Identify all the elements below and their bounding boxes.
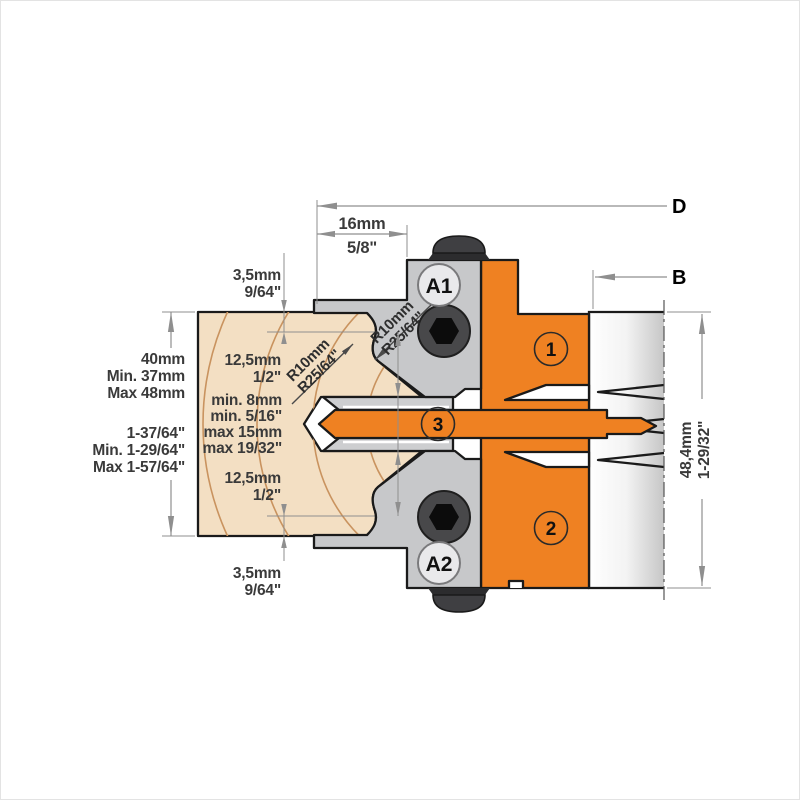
profile-bottom-mm: 12,5mm (224, 470, 281, 487)
cutter-head-diagram: A1 A2 1 2 3 R10mm R25/64" R10mm R25/64" … (0, 0, 800, 800)
width-in: 5/8" (347, 239, 377, 257)
badge-knife-1-label: 1 (546, 340, 557, 361)
width-mm: 16mm (339, 215, 386, 233)
drum-fill (589, 312, 664, 588)
height-in-max: Max 1-57/64" (93, 459, 185, 476)
gap-bottom-mm: 3,5mm (233, 565, 281, 582)
dimension-body-height: 48,4mm 1-29/32" (667, 312, 713, 588)
badge-a1-label: A1 (426, 275, 453, 298)
badge-a2-label: A2 (426, 553, 453, 576)
gap-bottom-in: 9/64" (244, 582, 281, 599)
arrow-up-icon (168, 312, 174, 332)
groove-min-in: min. 5/16" (210, 408, 282, 425)
height-mm-nominal: 40mm (141, 351, 185, 368)
height-in-min: Min. 1-29/64" (92, 442, 185, 459)
dimension-16mm: 16mm 5/8" (317, 215, 407, 257)
arrow-left-icon (317, 203, 337, 210)
profile-bottom-in: 1/2" (253, 487, 281, 504)
arrow-down-icon (699, 566, 705, 586)
arrow-down-icon (168, 516, 174, 536)
groove-max-in: max 19/32" (203, 440, 282, 457)
cutter-drum-body (589, 300, 664, 600)
diagram-canvas: A1 A2 1 2 3 R10mm R25/64" R10mm R25/64" … (1, 1, 800, 800)
height-mm-min: Min. 37mm (107, 368, 185, 385)
arrow-up-icon (699, 314, 705, 334)
dimension-b-label: B (672, 267, 686, 289)
groove-max-mm: max 15mm (203, 424, 282, 441)
screw-base-top (428, 253, 490, 260)
body-height-mm: 48,4mm (678, 422, 695, 479)
arrow-left-icon (595, 274, 615, 281)
arrow-up-icon (281, 536, 287, 548)
groove-knife (319, 410, 656, 438)
height-in-nominal: 1-37/64" (127, 425, 185, 442)
body-height-in: 1-29/32" (696, 421, 713, 479)
dimension-d-label: D (672, 196, 686, 218)
profile-top-mm: 12,5mm (224, 352, 281, 369)
badge-knife-3-label: 3 (433, 415, 444, 436)
arrow-down-icon (281, 300, 287, 312)
screw-base-bottom (428, 588, 490, 595)
dome-screw-top-icon (433, 236, 485, 253)
badge-knife-2-label: 2 (546, 519, 557, 540)
groove-min-mm: min. 8mm (211, 392, 282, 409)
dome-screw-bottom-icon (433, 595, 485, 612)
bottom-notch (509, 581, 523, 588)
height-mm-max: Max 48mm (107, 385, 185, 402)
gap-top-mm: 3,5mm (233, 267, 281, 284)
arrow-left-icon (317, 231, 335, 237)
dimension-b: B (593, 267, 686, 309)
gap-top-in: 9/64" (244, 284, 281, 301)
dimension-cut-height: 40mm Min. 37mm Max 48mm 1-37/64" Min. 1-… (92, 312, 195, 536)
profile-top-in: 1/2" (253, 369, 281, 386)
arrow-right-icon (389, 231, 407, 237)
